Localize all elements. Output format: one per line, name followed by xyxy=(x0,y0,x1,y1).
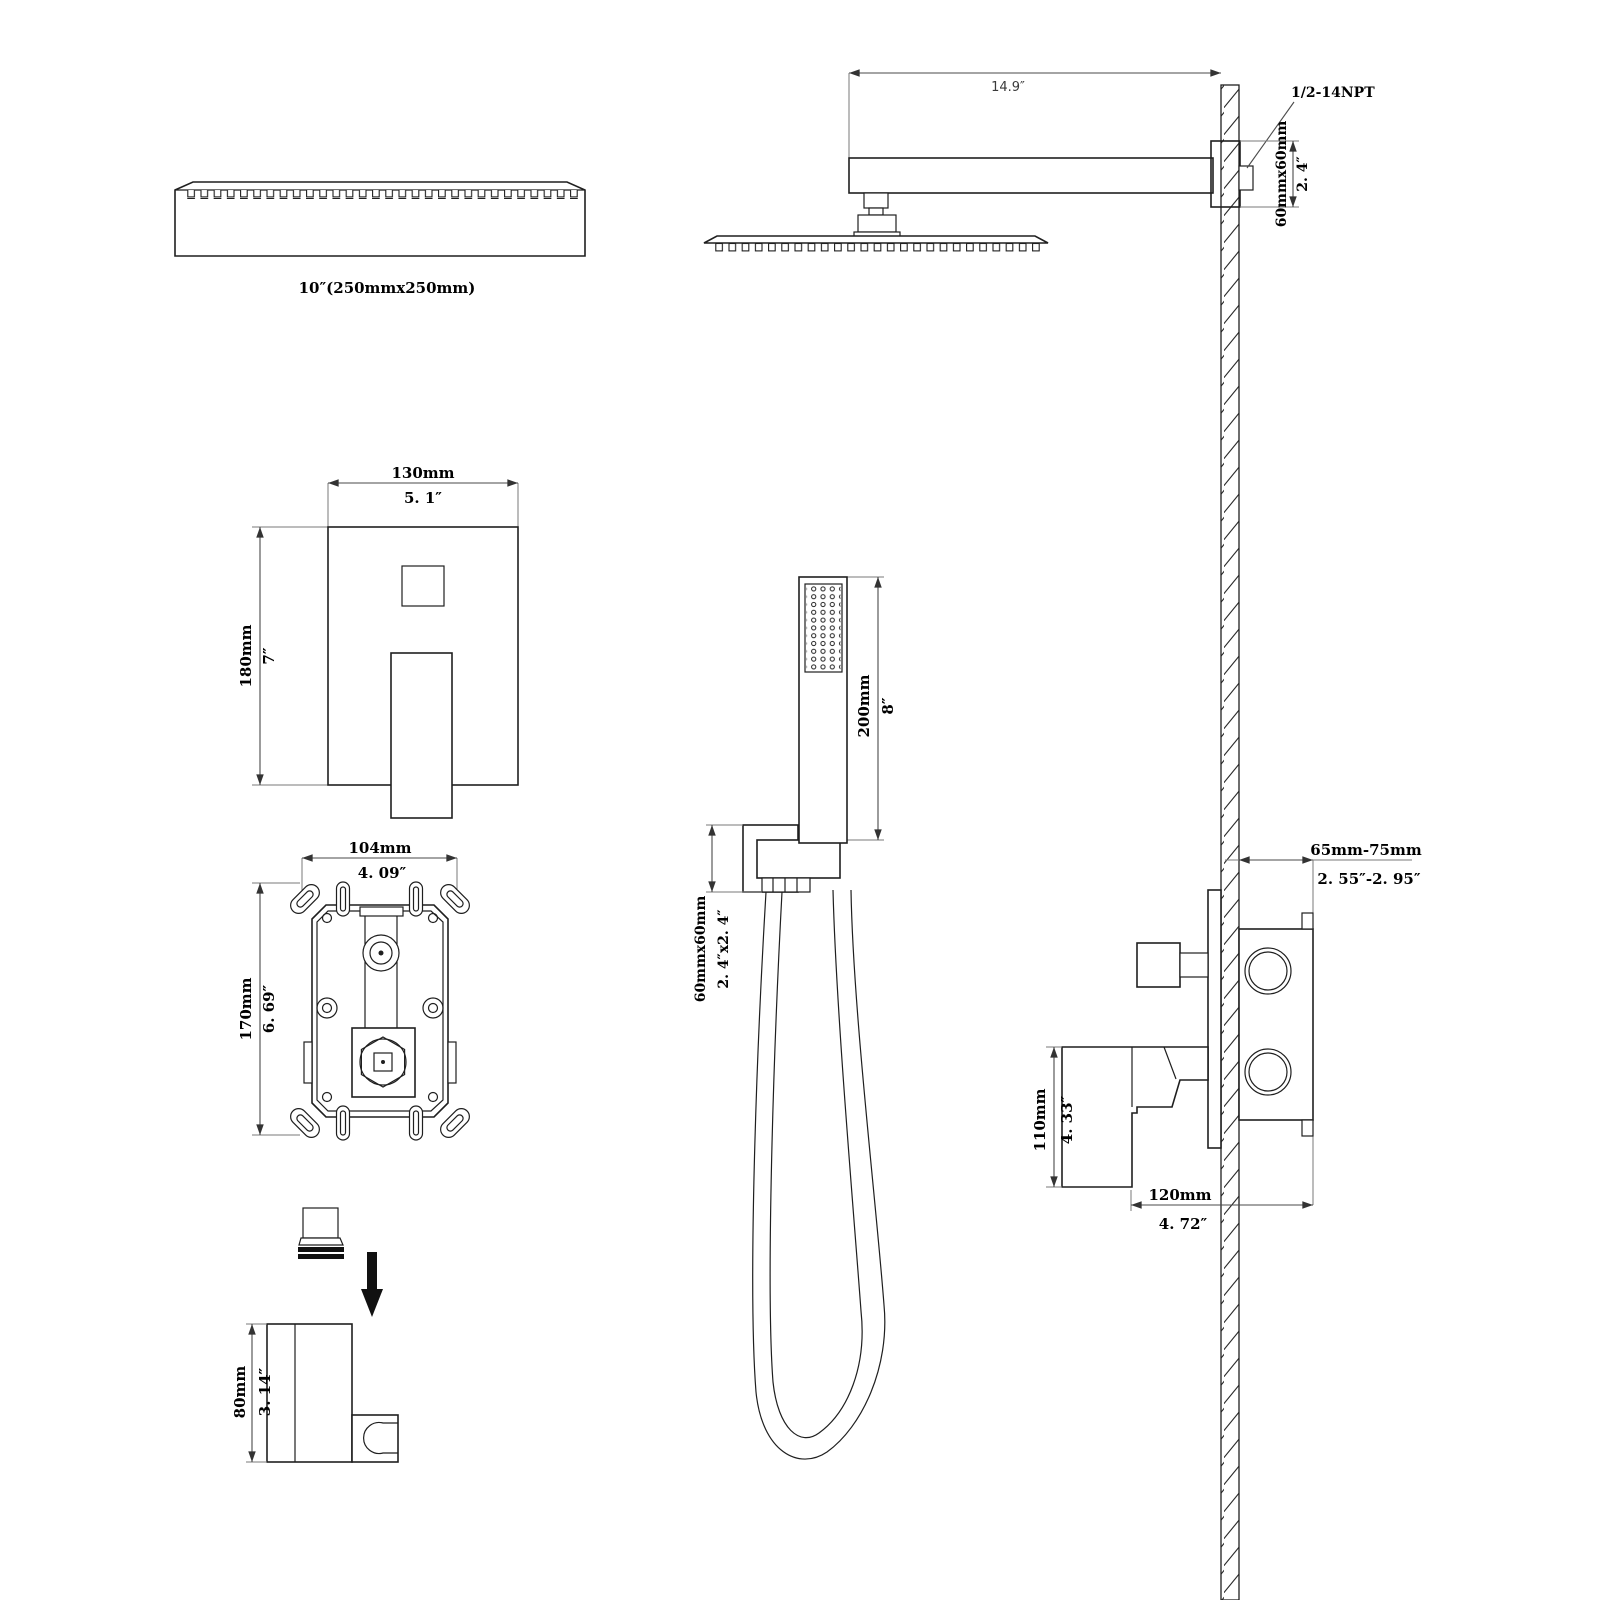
side-lever-handle xyxy=(1062,1047,1208,1187)
technical-drawing-page: 10″(250mmx250mm) 14.9″ 1/2-14NPT 60mmx60… xyxy=(0,0,1600,1600)
insert-arrow-head xyxy=(361,1289,383,1317)
depth-mm-label: 65mm-75mm xyxy=(1310,841,1422,859)
shower-system-dimension-drawing: 10″(250mmx250mm) 14.9″ 1/2-14NPT 60mmx60… xyxy=(0,0,1600,1600)
valve-height-mm-label: 170mm xyxy=(237,977,255,1040)
inlet-stub-left xyxy=(304,1042,312,1083)
handshower-view: 200mm 8″ 60mmx60mm 2. 4″x2. 4″ xyxy=(693,577,897,1459)
nozzle-row xyxy=(184,190,578,199)
side-diverter-stem xyxy=(1180,953,1208,977)
adapter-thread-band-1 xyxy=(298,1247,344,1252)
side-diverter-knob xyxy=(1137,943,1180,987)
plate-height-mm-label: 180mm xyxy=(237,624,255,687)
handle-height-mm-label: 110mm xyxy=(1031,1088,1049,1151)
mount-ear-top-right xyxy=(437,881,472,916)
insert-arrow-shaft xyxy=(367,1252,377,1290)
wand-length-mm-label: 200mm xyxy=(855,674,873,737)
mount-ear-top-left xyxy=(287,881,322,916)
flange-size-in-label: 2. 4″ xyxy=(1295,156,1311,192)
side-valve-tab-bottom xyxy=(1302,1120,1313,1136)
showerhead-side-view: 10″(250mmx250mm) xyxy=(175,182,585,297)
width-in-label: 4. 72″ xyxy=(1159,1215,1208,1233)
adapter-thread-band-2 xyxy=(298,1254,344,1259)
bracket-height-in-label: 3. 14″ xyxy=(256,1367,274,1416)
holder-size-mm-label: 60mmx60mm xyxy=(693,896,709,1003)
thread-spec-label: 1/2-14NPT xyxy=(1291,85,1375,101)
showerhead-plate xyxy=(704,236,1048,243)
hose-inner-line xyxy=(770,890,862,1438)
npt-nipple xyxy=(1239,166,1253,190)
valve-width-mm-label: 104mm xyxy=(348,839,411,857)
holder-lip xyxy=(762,878,810,892)
ball-joint-upper xyxy=(864,193,888,208)
arm-length-label: 14.9″ xyxy=(991,80,1025,95)
depth-in-label: 2. 55″-2. 95″ xyxy=(1317,870,1420,888)
side-valve-body xyxy=(1239,929,1313,1120)
bracket-height-mm-label: 80mm xyxy=(231,1366,249,1419)
wall-hatch xyxy=(1221,85,1239,1600)
holder-bracket-detail: 80mm 3. 14″ xyxy=(231,1208,398,1462)
trim-plate-front-view: 130mm 5. 1″ 180mm 7″ xyxy=(237,464,518,818)
plate-height-in-label: 7″ xyxy=(260,647,278,664)
upper-port-center xyxy=(379,951,384,956)
shower-arm xyxy=(849,158,1213,193)
wall-section xyxy=(1221,85,1239,1600)
valve-width-in-label: 4. 09″ xyxy=(358,864,407,882)
valve-top-tab xyxy=(360,907,403,916)
ball-joint-nut xyxy=(869,208,883,215)
head-size-label: 10″(250mmx250mm) xyxy=(299,279,476,297)
bracket-block xyxy=(267,1324,352,1462)
mount-ear-bottom-right xyxy=(437,1105,472,1140)
inlet-stub-right xyxy=(448,1042,456,1083)
adapter-flare xyxy=(299,1238,343,1245)
valve-height-in-label: 6. 69″ xyxy=(260,984,278,1033)
side-valve-tab-top xyxy=(1302,913,1313,929)
ball-joint-base xyxy=(858,215,896,232)
lever-handle-front xyxy=(391,653,452,818)
rough-in-valve-front-view: 104mm 4. 09″ 170mm 6. 69″ xyxy=(237,839,473,1141)
wand-length-in-label: 8″ xyxy=(879,697,897,714)
holder-size-in-label: 2. 4″x2. 4″ xyxy=(716,909,732,988)
side-trim-plate xyxy=(1208,890,1221,1148)
flange-size-mm-label: 60mmx60mm xyxy=(1274,121,1290,228)
showerhead-nozzle-row xyxy=(712,243,1040,252)
spray-face-dots xyxy=(807,586,841,670)
adapter-cap xyxy=(303,1208,338,1238)
plate-width-in-label: 5. 1″ xyxy=(404,489,442,507)
width-mm-label: 120mm xyxy=(1148,1186,1211,1204)
holder-cradle xyxy=(757,840,840,878)
bracket-clip-body xyxy=(352,1415,398,1462)
handle-height-in-label: 4. 33″ xyxy=(1058,1095,1076,1144)
shower-arm-side-view: 14.9″ 1/2-14NPT 60mmx60mm 2. 4″ xyxy=(704,73,1375,252)
cartridge-stem-center xyxy=(381,1060,385,1064)
plate-width-mm-label: 130mm xyxy=(391,464,454,482)
